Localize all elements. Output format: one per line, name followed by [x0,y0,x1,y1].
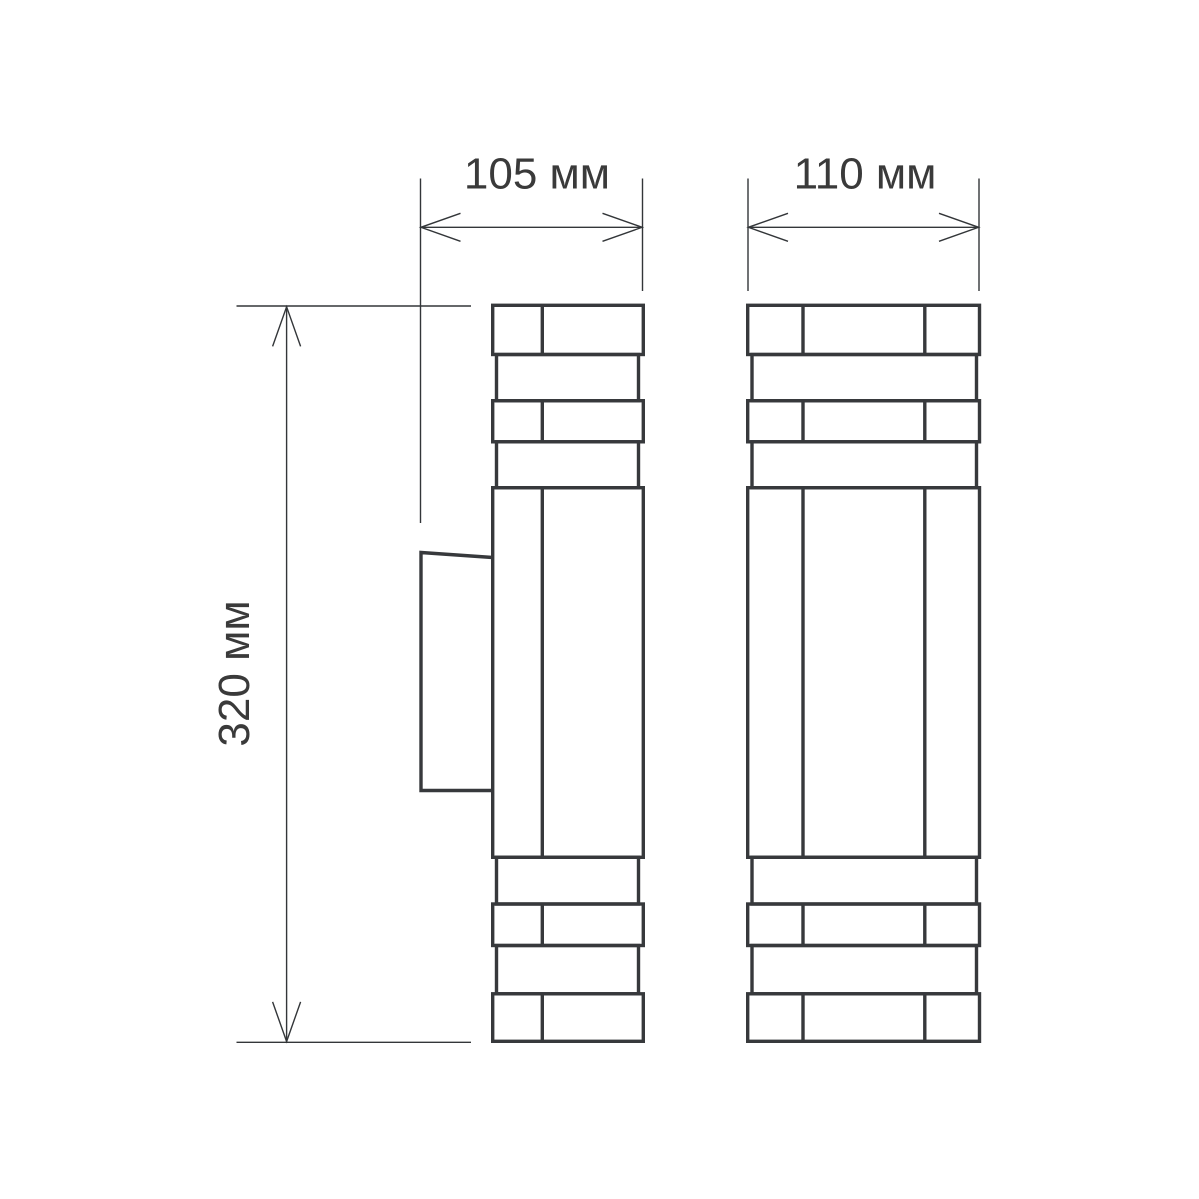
svg-text:105 мм: 105 мм [464,150,610,199]
svg-text:110 мм: 110 мм [794,150,937,199]
svg-text:320 мм: 320 мм [210,600,259,746]
